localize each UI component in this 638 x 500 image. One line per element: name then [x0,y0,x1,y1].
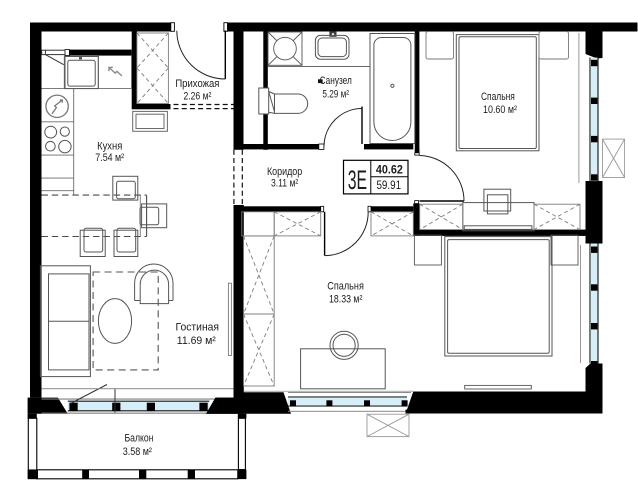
svg-text:11.69 м²: 11.69 м² [177,335,216,347]
svg-text:Кухня: Кухня [97,140,122,152]
svg-text:Балкон: Балкон [124,432,153,444]
svg-text:3.58 м²: 3.58 м² [123,446,153,458]
svg-text:10.60 м²: 10.60 м² [483,104,517,116]
svg-text:Санузел: Санузел [320,75,352,87]
svg-text:40.62: 40.62 [376,163,403,176]
svg-text:Коридор: Коридор [267,166,302,178]
svg-text:5.29 м²: 5.29 м² [322,89,349,101]
svg-text:7.54 м²: 7.54 м² [95,152,124,164]
svg-text:Спальня: Спальня [327,280,364,292]
svg-text:3Е: 3Е [348,165,367,195]
svg-text:59.91: 59.91 [376,179,401,192]
svg-text:Прихожая: Прихожая [175,78,219,90]
svg-text:Гостиная: Гостиная [176,322,220,334]
svg-text:18.33 м²: 18.33 м² [329,293,363,305]
svg-text:3.11 м²: 3.11 м² [271,178,299,190]
svg-text:Спальня: Спальня [481,91,515,103]
svg-text:2.26 м²: 2.26 м² [183,91,211,103]
